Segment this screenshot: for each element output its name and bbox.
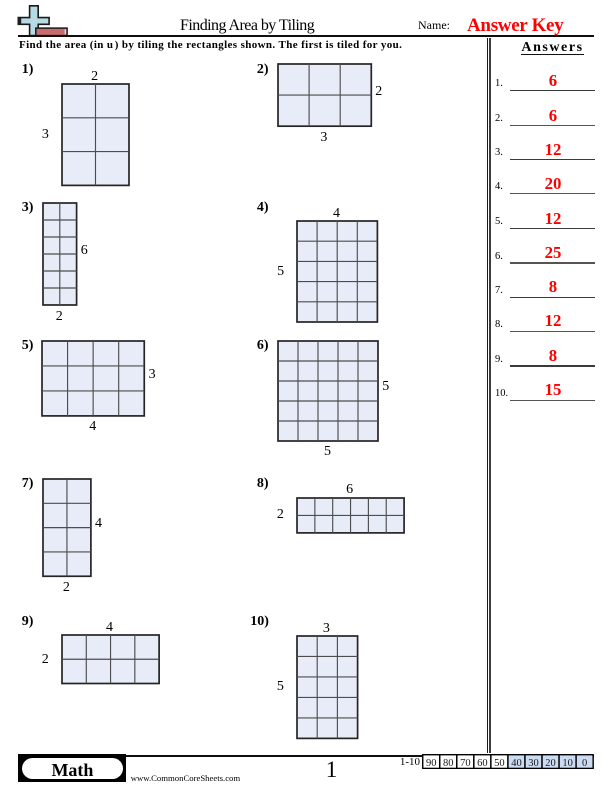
- svg-text:50: 50: [494, 758, 504, 769]
- svg-text:60: 60: [477, 758, 487, 769]
- svg-text:0: 0: [582, 758, 587, 769]
- svg-text:80: 80: [443, 758, 453, 769]
- svg-text:40: 40: [511, 758, 521, 769]
- svg-text:30: 30: [528, 758, 538, 769]
- svg-text:90: 90: [426, 758, 436, 769]
- svg-text:10: 10: [563, 758, 573, 769]
- svg-text:70: 70: [460, 758, 470, 769]
- svg-text:20: 20: [546, 758, 556, 769]
